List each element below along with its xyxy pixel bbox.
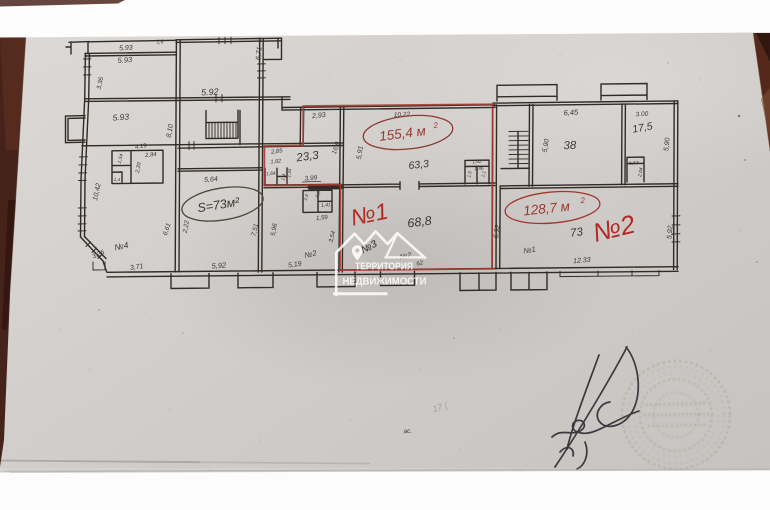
svg-text:1,13: 1,13 [629,160,639,167]
svg-text:1,4: 1,4 [114,177,121,183]
svg-text:6,71: 6,71 [255,46,263,60]
svg-text:1,82: 1,82 [270,158,281,165]
svg-text:ТЕРРИТОРИЯ: ТЕРРИТОРИЯ [355,262,413,273]
svg-text:3.00: 3.00 [635,111,648,119]
svg-text:5.93: 5.93 [119,45,133,53]
svg-text:38: 38 [563,140,577,152]
svg-text:5,64: 5,64 [204,176,218,184]
svg-text:1,41: 1,41 [321,202,331,209]
svg-text:ас.: ас. [403,428,412,436]
svg-text:5,92: 5,92 [667,225,675,239]
svg-text:73: 73 [569,226,584,240]
svg-text:63,3: 63,3 [408,158,430,172]
svg-text:68,8: 68,8 [407,214,433,231]
svg-text:1,62: 1,62 [472,159,482,166]
svg-text:5,92: 5,92 [211,260,227,270]
svg-text:5.92: 5.92 [201,87,219,98]
svg-text:1,6: 1,6 [157,40,164,46]
svg-text:5.93: 5.93 [117,55,133,65]
svg-text:НЕДВИЖИМОСТИ: НЕДВИЖИМОСТИ [343,276,427,288]
svg-text:6,45: 6,45 [563,108,579,118]
svg-text:1,64: 1,64 [266,171,276,178]
svg-text:1,59: 1,59 [316,215,329,222]
svg-text:5.93: 5.93 [112,111,129,122]
svg-text:5,90: 5,90 [663,137,671,151]
